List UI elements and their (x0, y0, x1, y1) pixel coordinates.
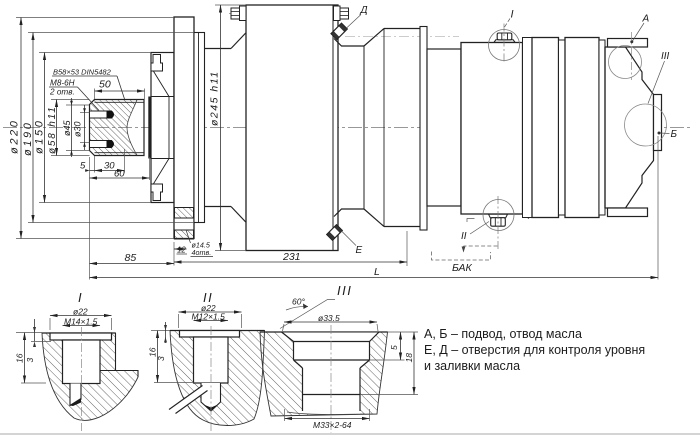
svg-text:III: III (337, 283, 352, 298)
svg-text:Е, Д – отверстия для контроля: Е, Д – отверстия для контроля уровня (424, 343, 645, 357)
svg-text:M33×2-64: M33×2-64 (313, 420, 352, 430)
svg-text:А: А (642, 14, 650, 25)
svg-text:ø30: ø30 (73, 121, 83, 137)
svg-text:3: 3 (156, 356, 166, 361)
svg-text:ø220: ø220 (9, 119, 21, 154)
svg-text:М12×1.5: М12×1.5 (192, 312, 226, 322)
svg-text:Е: Е (356, 245, 363, 256)
svg-text:ø58 h11: ø58 h11 (47, 105, 58, 154)
svg-text:B58×53 DIN5482: B58×53 DIN5482 (53, 68, 112, 77)
svg-text:5: 5 (80, 161, 86, 172)
svg-text:5: 5 (389, 345, 399, 350)
svg-text:2 отв.: 2 отв. (49, 88, 75, 97)
svg-text:ø33.5: ø33.5 (318, 313, 340, 323)
svg-text:ø150: ø150 (34, 119, 46, 154)
svg-text:А, Б – подвод, отвод масла: А, Б – подвод, отвод масла (424, 327, 582, 341)
svg-text:и заливки масла: и заливки масла (424, 359, 520, 373)
svg-text:85: 85 (125, 252, 137, 264)
svg-text:16: 16 (148, 347, 158, 357)
svg-text:18: 18 (404, 353, 414, 363)
svg-text:БАК: БАК (452, 262, 472, 274)
svg-text:М8-6Н: М8-6Н (50, 79, 75, 88)
svg-text:16: 16 (15, 353, 25, 363)
svg-text:ø45: ø45 (62, 119, 72, 136)
svg-text:50: 50 (99, 79, 111, 91)
svg-text:3: 3 (25, 358, 35, 363)
svg-text:12: 12 (177, 246, 186, 255)
svg-text:III: III (661, 51, 670, 62)
svg-text:ø190: ø190 (22, 121, 34, 156)
svg-text:L: L (374, 266, 380, 278)
svg-text:231: 231 (282, 251, 301, 263)
svg-text:ø245 h11: ø245 h11 (209, 70, 221, 126)
svg-text:ø22: ø22 (73, 307, 88, 317)
svg-text:I: I (78, 290, 82, 305)
svg-text:4отв.: 4отв. (192, 248, 212, 257)
svg-text:Б: Б (671, 129, 678, 140)
svg-text:I: I (511, 9, 514, 21)
svg-text:II: II (461, 231, 467, 242)
svg-text:М14×1.5: М14×1.5 (64, 317, 98, 327)
svg-text:60: 60 (114, 169, 125, 180)
